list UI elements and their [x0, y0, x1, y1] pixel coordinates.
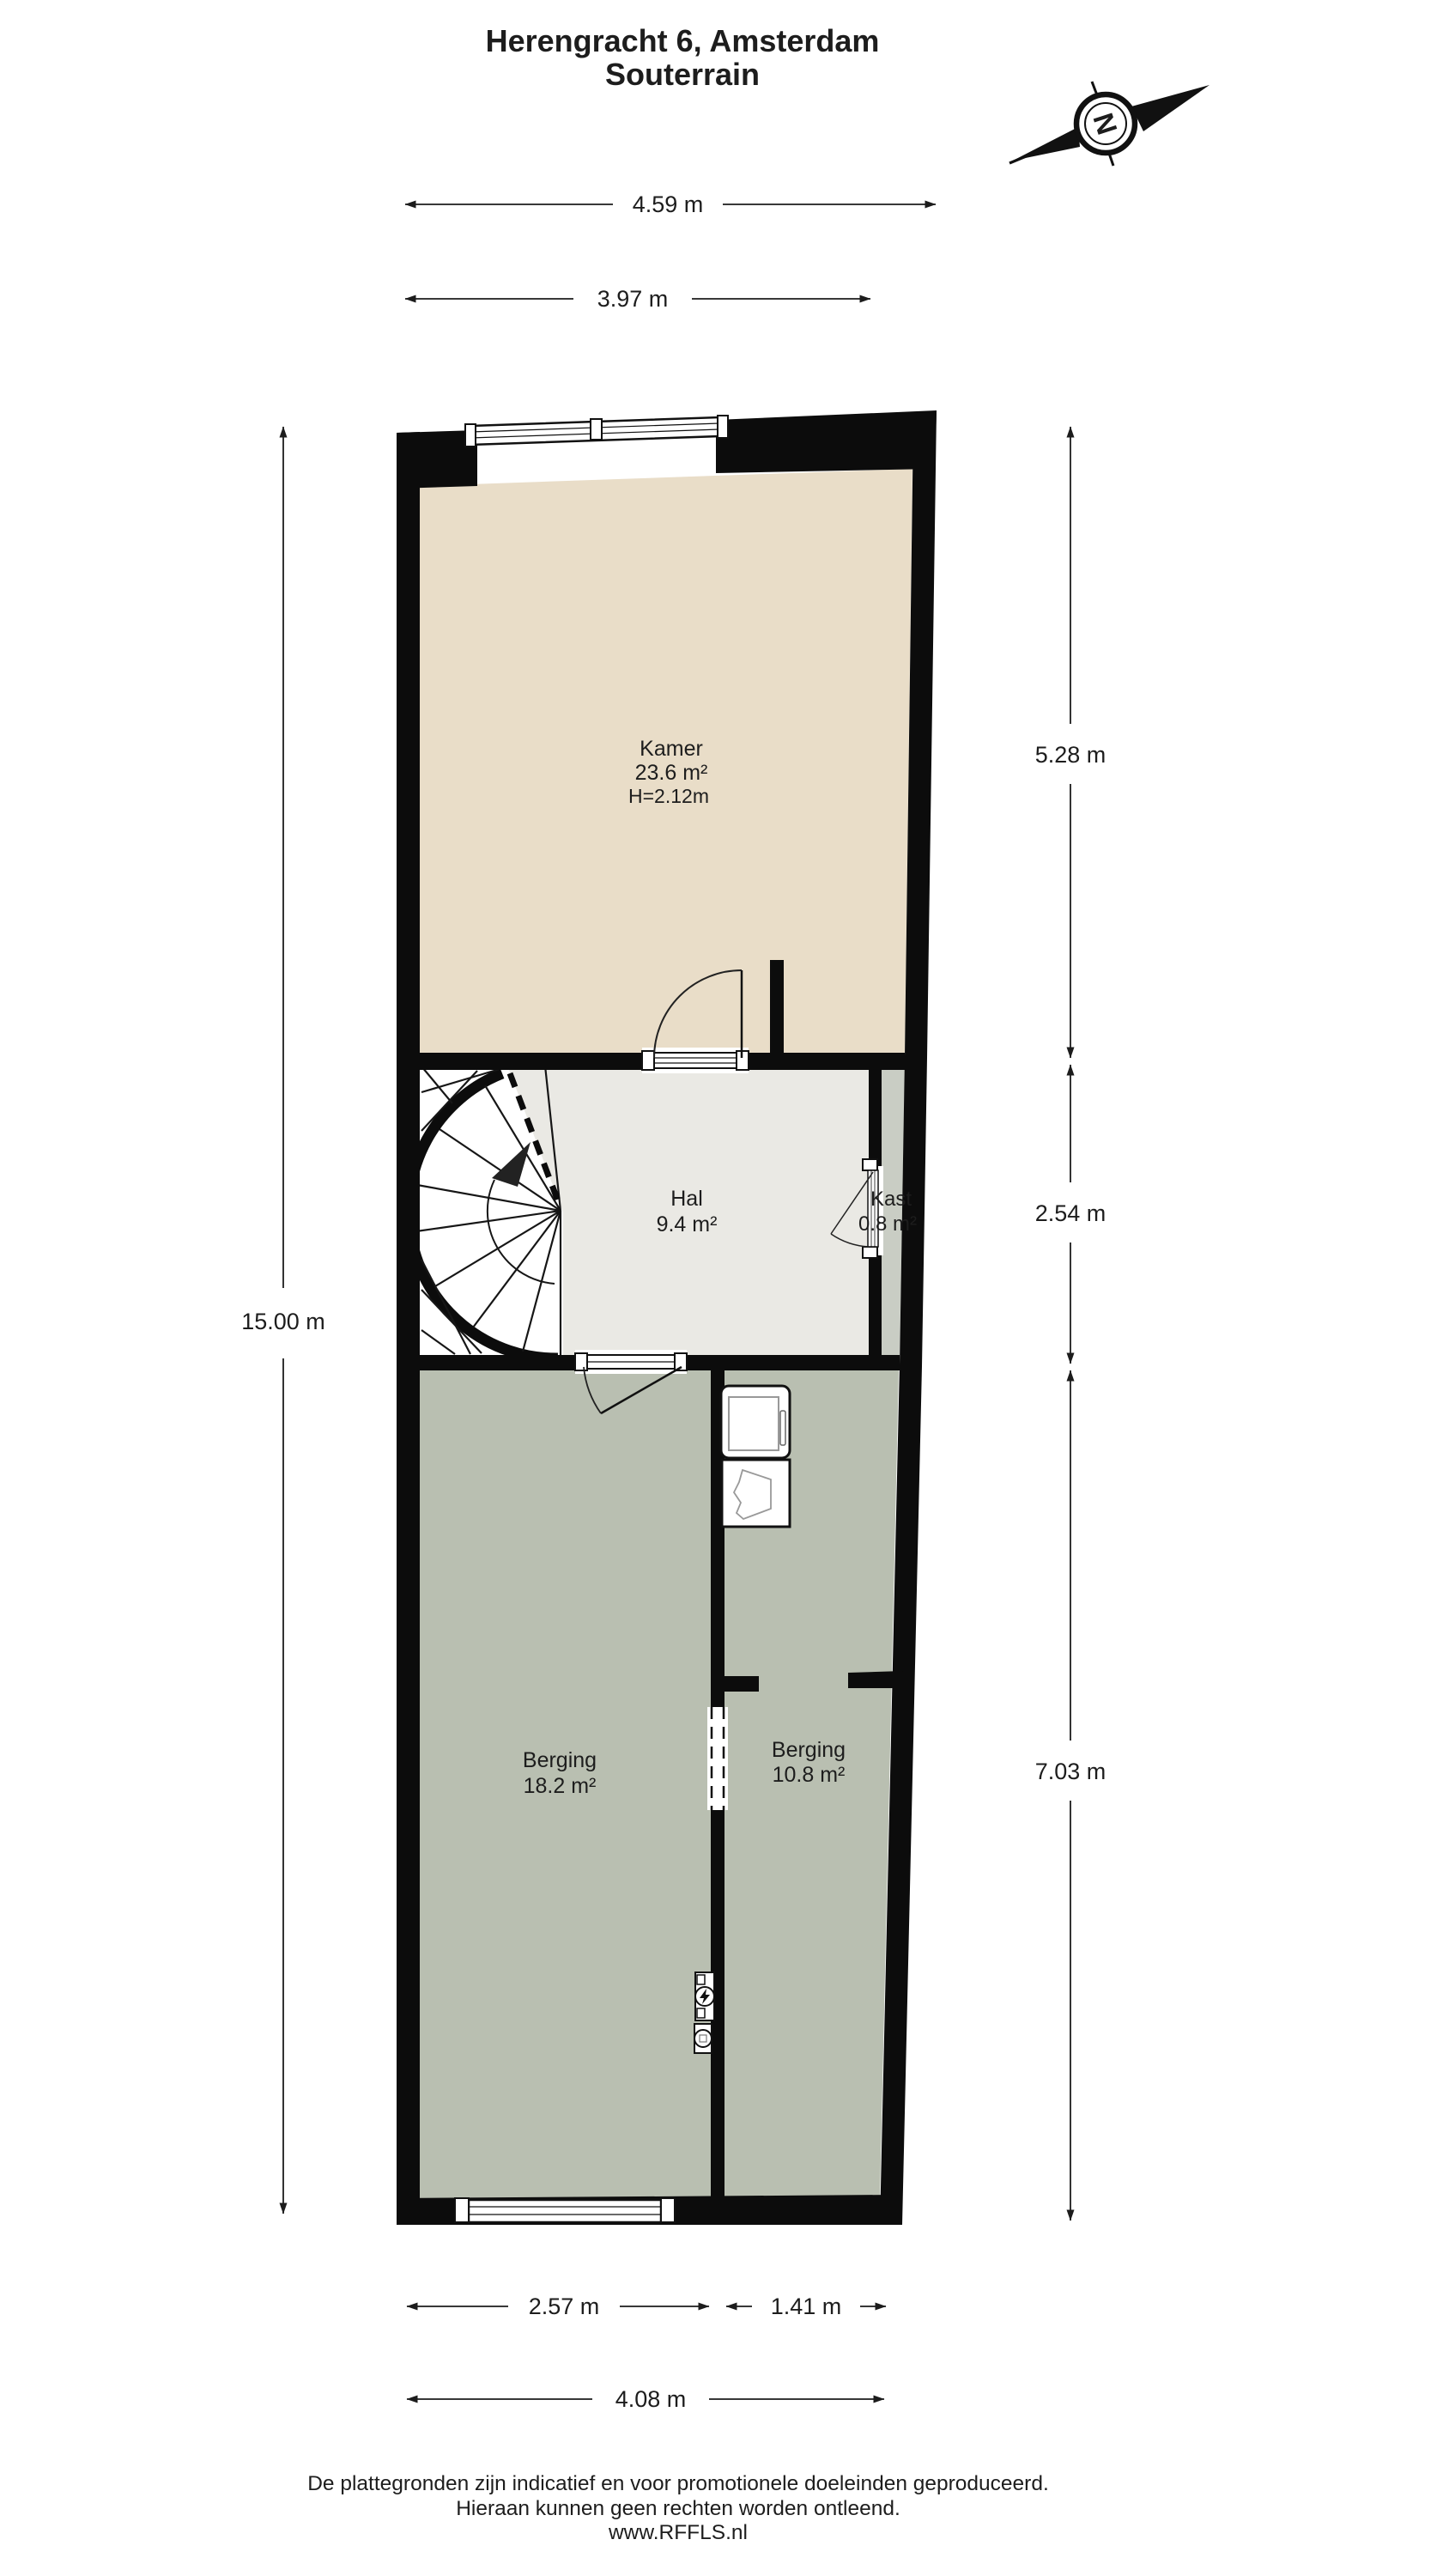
water-meter-icon: [694, 2024, 712, 2053]
kamer-wall-stub: [770, 960, 784, 1056]
dim-right-top: 5.28 m: [1035, 742, 1106, 768]
berging-left-label: Berging: [523, 1748, 597, 1772]
kamer-window: [465, 416, 728, 447]
hal-area: 9.4 m²: [657, 1212, 718, 1236]
berging-left-area: 18.2 m²: [524, 1774, 597, 1798]
hal-label: Hal: [670, 1187, 703, 1211]
kamer-height: H=2.12m: [628, 785, 709, 807]
berging-window: [455, 2198, 675, 2222]
sink-fixture: [722, 1460, 790, 1527]
dim-bottom-total: 4.08 m: [615, 2386, 687, 2412]
washer-fixture: [721, 1386, 790, 1458]
berging-right-area: 10.8 m²: [773, 1763, 846, 1787]
footer-website-link: www.RFFLS.nl: [608, 2521, 748, 2544]
dim-right-bottom: 7.03 m: [1035, 1759, 1106, 1784]
kamer-label: Kamer: [640, 737, 703, 761]
floor-plan-svg: Herengracht 6, Amsterdam Souterrain N: [0, 0, 1449, 2576]
dim-bottom-left: 2.57 m: [529, 2293, 600, 2319]
footer-disclaimer-line1: De plattegronden zijn indicatief en voor…: [307, 2472, 1049, 2495]
kast-label: Kast: [870, 1188, 912, 1211]
dim-top-outer: 4.59 m: [633, 191, 704, 217]
north-compass-icon: N: [1009, 82, 1210, 166]
berging-passage-opening: [707, 1707, 728, 1810]
berging-right-label: Berging: [772, 1738, 846, 1762]
dim-right-middle: 2.54 m: [1035, 1200, 1106, 1226]
dim-top-inner: 3.97 m: [597, 286, 669, 312]
page-subtitle: Souterrain: [605, 57, 760, 92]
dim-left-total: 15.00 m: [241, 1309, 325, 1334]
footer-disclaimer-line2: Hieraan kunnen geen rechten worden ontle…: [456, 2497, 900, 2520]
kamer-area: 23.6 m²: [635, 761, 708, 785]
dim-bottom-right: 1.41 m: [771, 2293, 842, 2319]
page-title: Herengracht 6, Amsterdam: [486, 23, 880, 58]
room-floors: [420, 469, 912, 2198]
electric-meter-icon: [695, 1972, 714, 2020]
kast-area: 0.8 m²: [858, 1212, 917, 1236]
